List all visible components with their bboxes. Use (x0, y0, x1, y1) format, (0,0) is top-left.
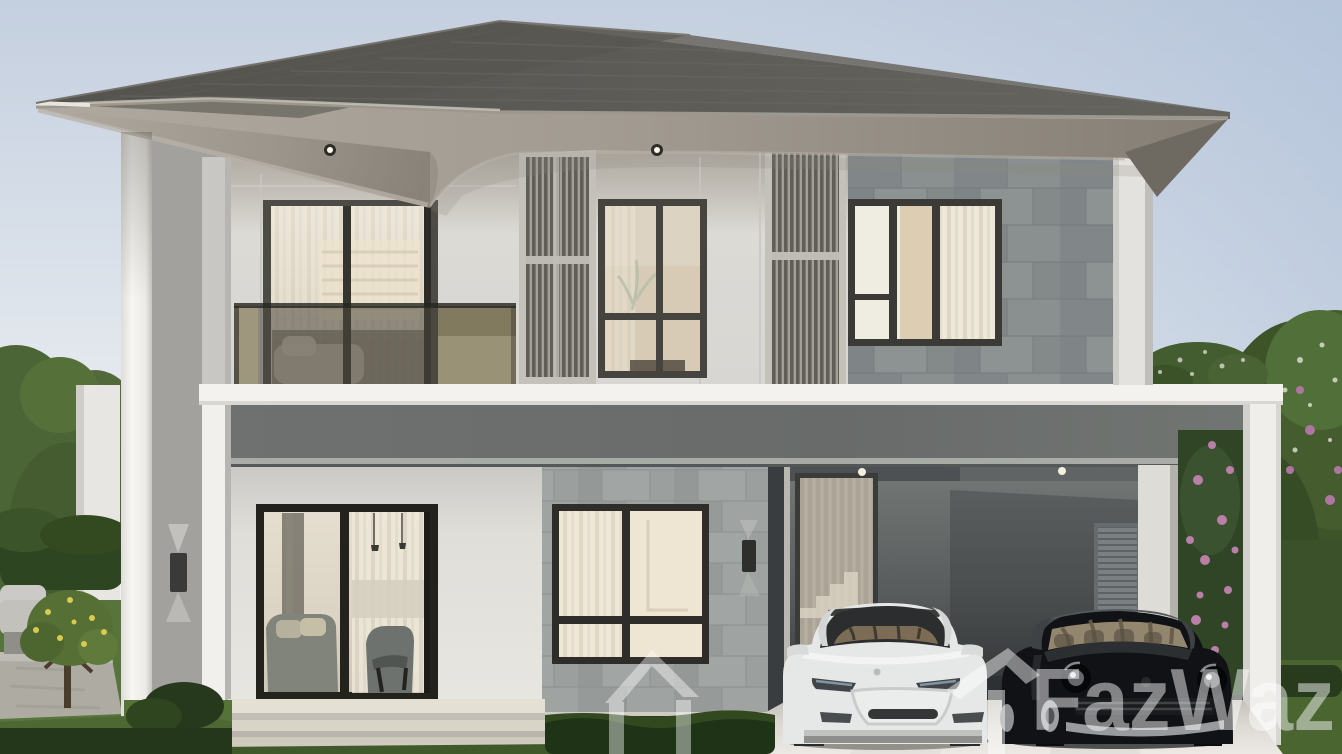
svg-text:FazWaz: FazWaz (1031, 650, 1335, 749)
